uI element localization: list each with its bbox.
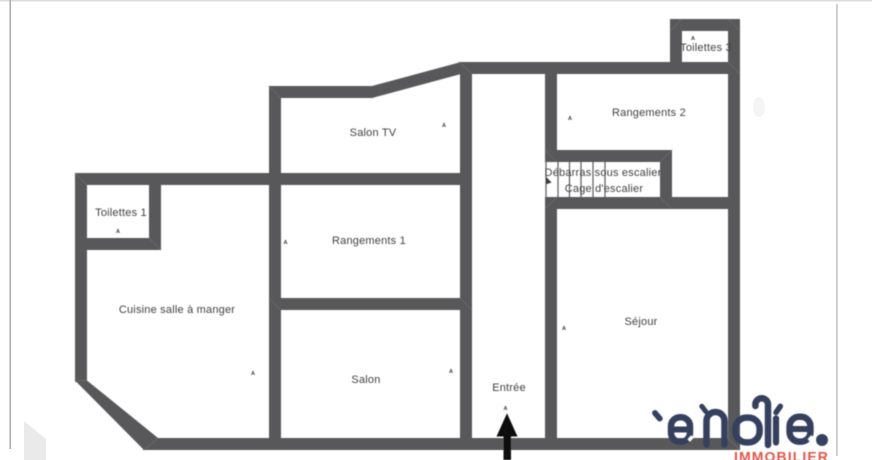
svg-text:Séjour: Séjour bbox=[625, 316, 658, 328]
svg-text:A: A bbox=[504, 406, 508, 412]
svg-text:A: A bbox=[442, 123, 446, 129]
svg-text:IMMOBILIER: IMMOBILIER bbox=[734, 449, 829, 460]
svg-text:Toilettes 3: Toilettes 3 bbox=[680, 42, 732, 54]
svg-text:A: A bbox=[691, 36, 695, 42]
svg-text:Débarras sous escalier: Débarras sous escalier bbox=[545, 167, 662, 179]
svg-text:Salon TV: Salon TV bbox=[350, 127, 397, 139]
svg-text:Rangements 2: Rangements 2 bbox=[612, 107, 686, 119]
svg-text:Entrée: Entrée bbox=[492, 382, 526, 394]
svg-text:Toilettes 1: Toilettes 1 bbox=[95, 207, 147, 219]
svg-text:Cuisine salle à manger: Cuisine salle à manger bbox=[119, 304, 235, 316]
svg-text:A: A bbox=[562, 326, 566, 332]
svg-text:Salon: Salon bbox=[351, 374, 380, 386]
svg-text:A: A bbox=[251, 371, 255, 377]
svg-text:Cage d'escalier: Cage d'escalier bbox=[565, 183, 644, 195]
svg-text:A: A bbox=[284, 240, 288, 246]
svg-text:A: A bbox=[568, 116, 572, 122]
svg-text:A: A bbox=[449, 369, 453, 375]
svg-text:A: A bbox=[116, 229, 120, 235]
svg-text:Rangements 1: Rangements 1 bbox=[332, 235, 406, 247]
